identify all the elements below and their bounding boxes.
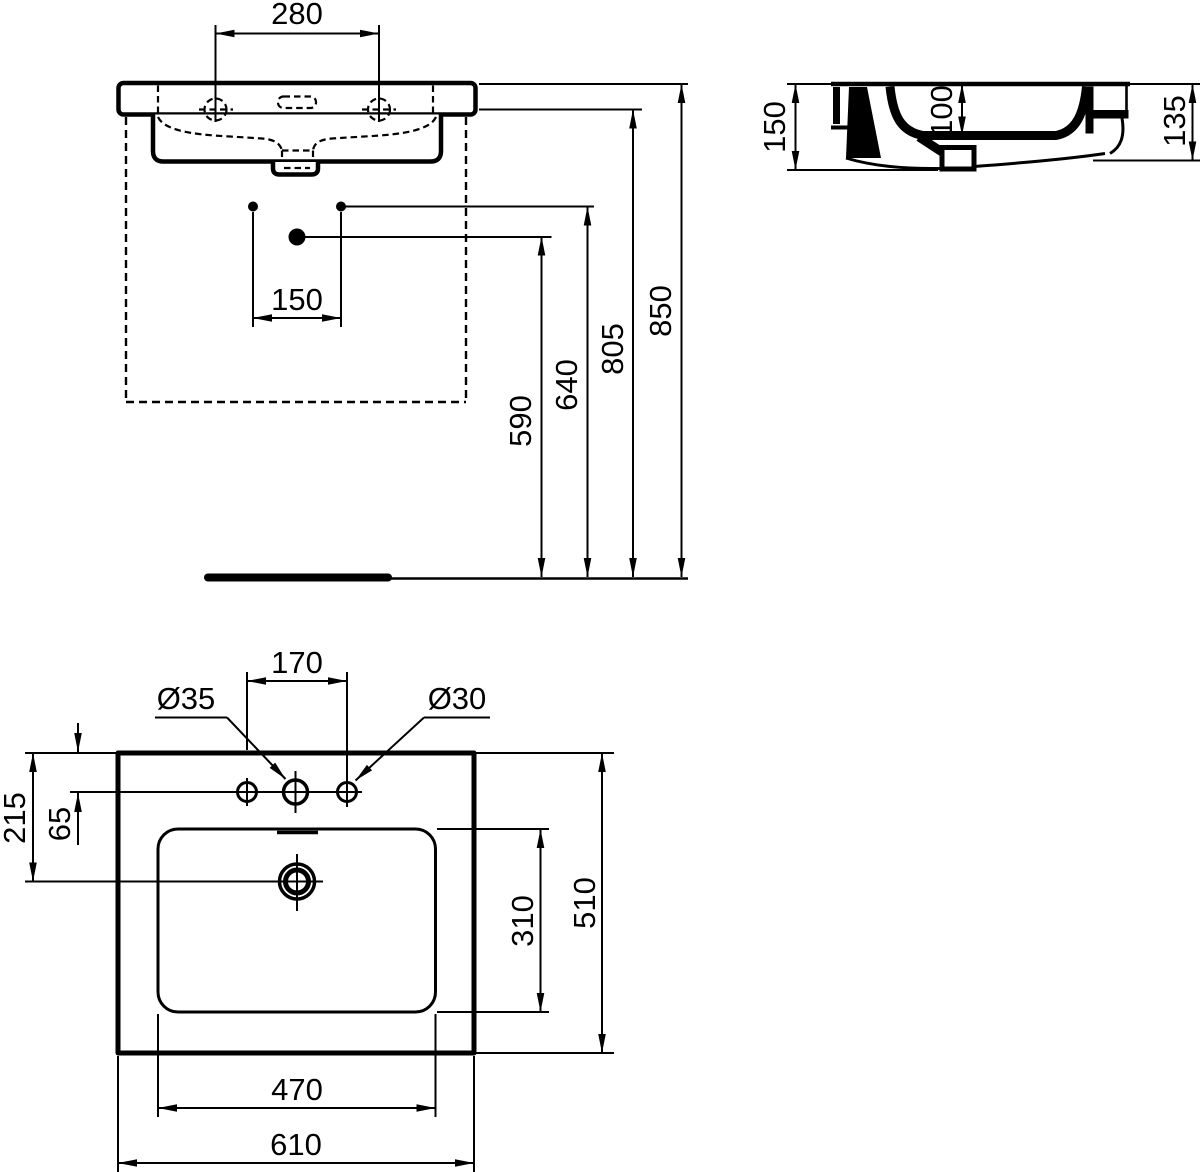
- dim-65-label: 65: [42, 807, 77, 841]
- dim-510: 510: [476, 753, 614, 1053]
- dim-805: 805: [595, 110, 633, 578]
- dim-170-label: 170: [271, 645, 323, 680]
- dim-65: 65: [42, 723, 78, 845]
- dim-470-label: 470: [271, 1072, 323, 1107]
- dim-100: 100: [924, 84, 962, 137]
- front-rim-outline: [119, 83, 476, 115]
- washbasin-drawing: 280 150 590 640 805: [0, 0, 1200, 1172]
- front-bowl-outline: [153, 115, 441, 162]
- dim-135: 135: [1093, 84, 1200, 161]
- side-view: 150 100 135: [757, 84, 1200, 170]
- dim-280-label: 280: [271, 0, 323, 31]
- side-apron-bar: [1092, 110, 1129, 119]
- technical-drawing-page: 280 150 590 640 805: [0, 0, 1200, 1172]
- dim-590-label: 590: [503, 395, 538, 447]
- plan-view: 170 Ø35 Ø30 215 65 310: [0, 645, 614, 1172]
- dim-610-label: 610: [270, 1127, 322, 1162]
- dim-215: 215: [0, 753, 33, 882]
- dim-215-label: 215: [0, 792, 32, 844]
- dim-850: 850: [643, 84, 682, 577]
- side-drain-outlet: [942, 148, 974, 170]
- dim-590: 590: [503, 237, 542, 578]
- fixing-point-left: [248, 202, 258, 212]
- dim-805-label: 805: [595, 323, 630, 375]
- dim-310-label: 310: [505, 895, 540, 947]
- dim-150-side: 150: [757, 84, 796, 170]
- dim-150-side-label: 150: [757, 101, 792, 153]
- dim-640: 640: [549, 207, 588, 578]
- callout-d35-label: Ø35: [157, 681, 216, 716]
- side-back-wall-section: [846, 87, 881, 158]
- side-bowl-section: [890, 87, 1087, 136]
- dim-100-label: 100: [924, 85, 959, 137]
- dim-640-label: 640: [549, 359, 584, 411]
- dim-510-label: 510: [567, 877, 602, 929]
- side-underside-right: [974, 154, 1105, 167]
- side-front-underside: [1110, 118, 1123, 154]
- side-underside-left: [846, 158, 940, 169]
- front-view: 280 150 590 640 805: [119, 0, 689, 579]
- dim-135-label: 135: [1157, 95, 1192, 147]
- callout-d30-label: Ø30: [428, 681, 487, 716]
- dim-850-label: 850: [643, 285, 678, 337]
- dim-150-label: 150: [271, 282, 323, 317]
